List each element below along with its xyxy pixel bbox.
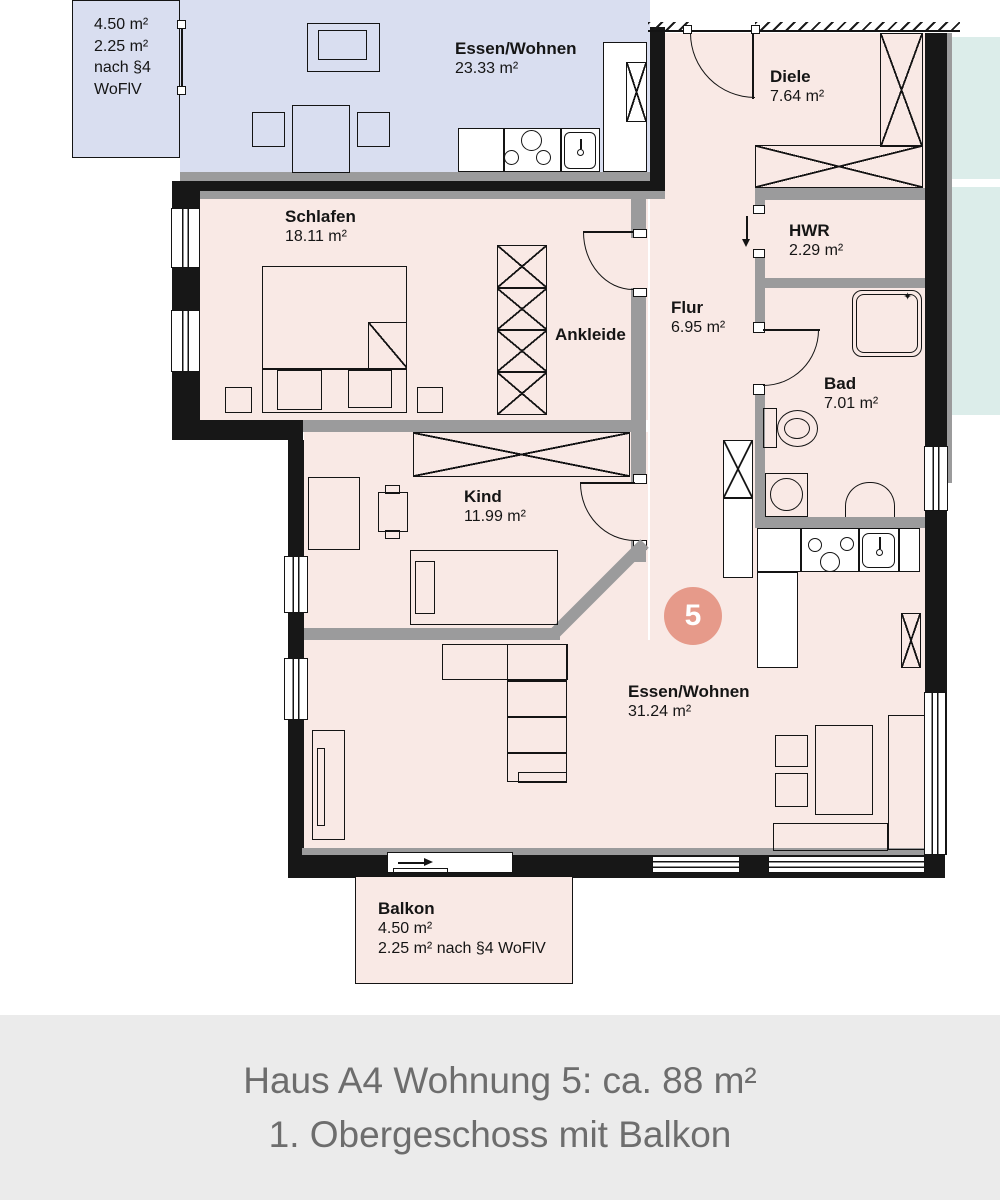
nightstand [417, 387, 443, 413]
hall-cabinet-low [723, 498, 753, 578]
wardrobe-cell [497, 245, 547, 288]
pillow [415, 561, 435, 614]
wall [304, 628, 560, 640]
window [924, 446, 948, 511]
door-jamb [633, 288, 647, 297]
wall [180, 181, 665, 191]
room-label-bad: Bad 7.01 m² [824, 373, 878, 414]
wall [180, 172, 665, 181]
stove-burner [808, 538, 822, 552]
shaft [880, 33, 923, 147]
room-name: Essen/Wohnen [628, 682, 750, 701]
pillow [348, 370, 392, 408]
room-label-neighbor: Essen/Wohnen 23.33 m² [455, 38, 577, 79]
sliding-door-rail [393, 868, 448, 873]
hwr-slide-door-arrow [742, 239, 750, 247]
neighbor-balcony-line: 4.50 m² [94, 14, 151, 36]
stove-burner [840, 537, 854, 551]
wardrobe-cell [497, 288, 547, 330]
wall-lining [947, 33, 952, 483]
counter-divider [800, 528, 802, 572]
room-name: Essen/Wohnen [455, 39, 577, 58]
room-area: 18.11 m² [285, 227, 356, 247]
wall [755, 278, 925, 288]
room-label-schlafen: Schlafen 18.11 m² [285, 206, 356, 247]
wc-tank [763, 408, 777, 448]
caption-title: Haus A4 Wohnung 5: ca. 88 m² [243, 1058, 757, 1104]
wardrobe-cell [497, 372, 547, 415]
caption-subtitle: 1. Obergeschoss mit Balkon [269, 1112, 732, 1158]
sideboard-divider [507, 716, 567, 718]
room-name: Diele [770, 67, 811, 86]
room-label-balkon: Balkon 4.50 m² 2.25 m² nach §4 WoFlV [378, 898, 546, 959]
door-jamb [753, 249, 765, 258]
wall [180, 191, 665, 199]
coffee-table [815, 725, 873, 815]
chair-tab [385, 485, 400, 494]
wall [755, 517, 925, 528]
wardrobe [413, 432, 630, 477]
neighbor-teal-unit [952, 37, 1000, 415]
stove-burner [521, 130, 542, 151]
dining-table [292, 105, 350, 173]
shower-head-icon: ✦ [903, 292, 912, 303]
room-label-flur: Flur 6.95 m² [671, 297, 725, 338]
unit-number-badge: 5 [664, 587, 722, 645]
door-opening [755, 213, 765, 250]
railing [181, 20, 183, 95]
blanket-fold [368, 322, 407, 368]
stove-burner [536, 150, 551, 165]
neighbor-balcony-label: 4.50 m² 2.25 m² nach §4 WoFlV [94, 14, 151, 100]
sideboard-divider [507, 752, 567, 754]
railing-post [177, 86, 186, 95]
sideboard-foot [518, 772, 567, 783]
room-area: 31.24 m² [628, 702, 750, 722]
window [652, 856, 740, 873]
window [768, 856, 925, 873]
chair-tab [385, 530, 400, 539]
wall [288, 440, 304, 855]
room-label-kind: Kind 11.99 m² [464, 486, 526, 527]
nightstand [225, 387, 252, 413]
room-name: Bad [824, 374, 856, 393]
door-jamb [633, 229, 647, 238]
room-area-note: 2.25 m² nach §4 WoFlV [378, 939, 546, 959]
wardrobe [755, 145, 923, 188]
door-opening [631, 238, 646, 288]
sink-faucet [876, 549, 883, 556]
room-label-wohnen: Essen/Wohnen 31.24 m² [628, 681, 750, 722]
sliding-door-arrow-head [424, 858, 433, 866]
room-area: 7.64 m² [770, 87, 824, 107]
hall-cabinet [723, 440, 753, 498]
floor-plan-page: ✦ 5 4.50 [0, 0, 1000, 1200]
neighbor-balcony-line: nach §4 [94, 57, 151, 79]
sink-faucet [577, 149, 584, 156]
tall-cabinet [626, 62, 647, 122]
room-name: Ankleide [555, 325, 626, 344]
chair [357, 112, 390, 147]
room-area: 7.01 m² [824, 394, 878, 414]
room-label-diele: Diele 7.64 m² [770, 66, 824, 107]
room-area: 6.95 m² [671, 318, 725, 338]
window [171, 310, 200, 372]
hwr-slide-door-line [746, 216, 748, 240]
sideboard-l-side [507, 644, 567, 782]
counter-divider [858, 528, 860, 572]
side-table [775, 773, 808, 807]
room-label-hwr: HWR 2.29 m² [789, 220, 843, 261]
sink-faucet-stem [879, 537, 881, 549]
sideboard-divider [507, 680, 567, 682]
room-label-ankleide: Ankleide [555, 324, 626, 345]
wall [755, 188, 925, 200]
counter-divider [560, 128, 562, 172]
pillow [277, 370, 322, 410]
door-jamb [753, 205, 765, 214]
fridge-cabinet [901, 613, 921, 668]
wall [303, 420, 633, 432]
stove-burner [504, 150, 519, 165]
side-table [775, 735, 808, 767]
sink-faucet-stem [580, 139, 582, 149]
railing-post [177, 20, 186, 29]
neighbor-teal-gap [952, 179, 1000, 187]
room-area: 4.50 m² [378, 919, 546, 939]
counter-divider [503, 128, 505, 172]
door-jamb [633, 474, 647, 484]
desk-chair [378, 492, 408, 532]
room-area: 23.33 m² [455, 59, 577, 79]
room-name: Schlafen [285, 207, 356, 226]
room-name: HWR [789, 221, 830, 240]
wall [172, 420, 303, 440]
desk [308, 477, 360, 550]
entrance-door-leaf [752, 33, 754, 99]
table-inner [318, 30, 367, 60]
washing-machine-drum [770, 478, 803, 511]
kitchen-counter-side [757, 572, 798, 668]
threshold-line [648, 30, 960, 32]
room-area: 11.99 m² [464, 507, 526, 527]
window [171, 208, 200, 268]
wall [650, 27, 665, 181]
room-name: Flur [671, 298, 703, 317]
caption-band: Haus A4 Wohnung 5: ca. 88 m² 1. Obergesc… [0, 1015, 1000, 1200]
room-name: Balkon [378, 899, 435, 918]
window [284, 658, 308, 720]
wc-bowl-inner [784, 418, 810, 439]
neighbor-balcony-line: 2.25 m² [94, 36, 151, 58]
wall-sideboard-inner [317, 748, 325, 826]
chair [252, 112, 285, 147]
room-name: Kind [464, 487, 502, 506]
sofa-seat [773, 823, 888, 851]
sofa-chaise [888, 715, 925, 850]
room-area: 2.29 m² [789, 241, 843, 261]
neighbor-balcony-line: WoFlV [94, 79, 151, 101]
sliding-door-arrow [398, 862, 424, 864]
window [284, 556, 308, 613]
window [924, 692, 946, 855]
stove-burner [820, 552, 840, 572]
counter-divider [898, 528, 900, 572]
wardrobe-cell [497, 330, 547, 372]
